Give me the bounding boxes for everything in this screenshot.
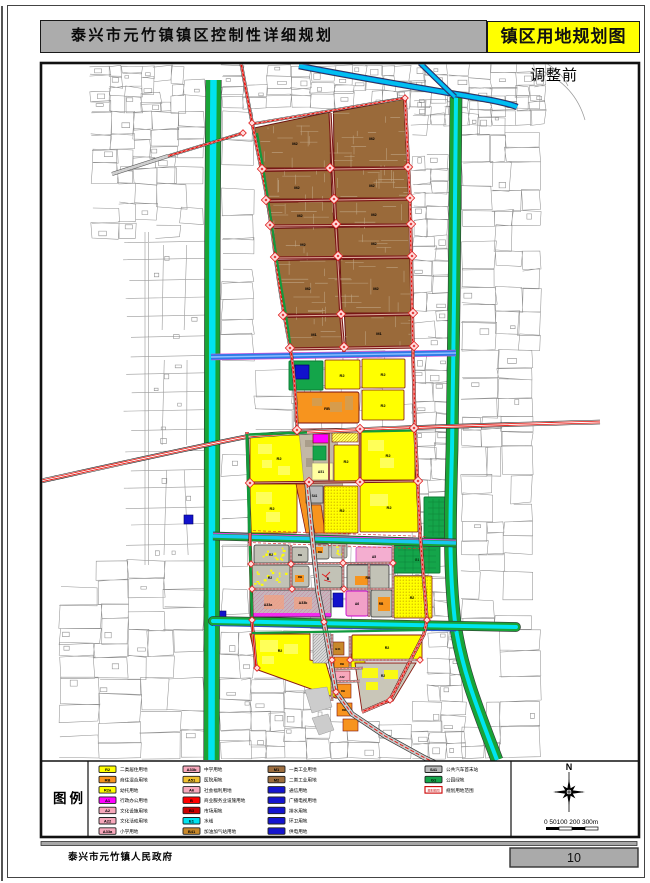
svg-text:R2: R2 bbox=[105, 767, 111, 772]
svg-text:二类居住用地: 二类居住用地 bbox=[120, 766, 148, 773]
svg-text:M2: M2 bbox=[294, 185, 300, 190]
svg-text:RB: RB bbox=[342, 708, 346, 712]
svg-text:一类工业用地: 一类工业用地 bbox=[289, 766, 317, 773]
svg-text:B41: B41 bbox=[335, 647, 341, 651]
svg-text:A1: A1 bbox=[105, 798, 111, 803]
svg-text:S41: S41 bbox=[430, 767, 438, 772]
svg-text:公共汽车首末站: 公共汽车首末站 bbox=[446, 766, 479, 773]
svg-text:A33b: A33b bbox=[299, 601, 309, 605]
svg-text:M2: M2 bbox=[369, 183, 375, 188]
svg-text:B: B bbox=[190, 798, 193, 803]
svg-text:行政办公用地: 行政办公用地 bbox=[120, 797, 148, 804]
svg-text:M2: M2 bbox=[373, 286, 379, 291]
svg-text:R2: R2 bbox=[410, 596, 414, 600]
svg-text:A33b: A33b bbox=[187, 767, 197, 772]
svg-text:商业服务业设施用地: 商业服务业设施用地 bbox=[204, 797, 246, 804]
svg-text:水域: 水域 bbox=[204, 818, 214, 824]
svg-text:0 50100 200 300m: 0 50100 200 300m bbox=[544, 819, 598, 826]
svg-text:A5: A5 bbox=[372, 555, 376, 559]
svg-text:R2: R2 bbox=[269, 553, 273, 557]
svg-text:通信用地: 通信用地 bbox=[289, 787, 308, 794]
svg-text:文化设施用地: 文化设施用地 bbox=[120, 807, 148, 814]
svg-text:R2a: R2a bbox=[104, 788, 112, 793]
svg-text:R2: R2 bbox=[276, 456, 282, 461]
svg-text:图例: 图例 bbox=[53, 790, 86, 806]
svg-text:R2: R2 bbox=[380, 403, 386, 408]
svg-text:RB: RB bbox=[324, 406, 330, 411]
svg-text:幼托用地: 幼托用地 bbox=[120, 787, 139, 794]
svg-text:A22: A22 bbox=[104, 819, 112, 824]
svg-text:10: 10 bbox=[567, 851, 581, 865]
svg-text:A51: A51 bbox=[318, 470, 324, 474]
svg-text:B3: B3 bbox=[189, 808, 195, 813]
svg-text:M2: M2 bbox=[274, 777, 280, 782]
svg-text:RB: RB bbox=[340, 662, 344, 666]
svg-text:M2: M2 bbox=[305, 286, 311, 291]
svg-text:A33a: A33a bbox=[264, 603, 274, 607]
svg-text:A2: A2 bbox=[105, 808, 111, 813]
svg-text:文化活动用地: 文化活动用地 bbox=[120, 818, 148, 825]
svg-text:R2: R2 bbox=[339, 373, 345, 378]
svg-text:规划用地范围: 规划用地范围 bbox=[446, 787, 474, 794]
svg-text:M1: M1 bbox=[376, 331, 382, 336]
svg-text:N: N bbox=[566, 762, 573, 772]
svg-text:排水用地: 排水用地 bbox=[289, 807, 308, 814]
svg-text:R2: R2 bbox=[386, 505, 392, 510]
svg-text:A22: A22 bbox=[339, 675, 345, 679]
svg-text:E1: E1 bbox=[189, 819, 195, 824]
svg-text:R2: R2 bbox=[385, 646, 390, 650]
svg-text:M1: M1 bbox=[274, 767, 280, 772]
svg-text:广播电视用地: 广播电视用地 bbox=[289, 797, 317, 804]
svg-text:R2: R2 bbox=[269, 506, 275, 511]
svg-text:R2: R2 bbox=[380, 372, 386, 377]
svg-text:供电用地: 供电用地 bbox=[289, 828, 308, 835]
svg-text:RB: RB bbox=[379, 602, 384, 606]
svg-text:RB: RB bbox=[366, 576, 371, 580]
svg-text:M2: M2 bbox=[292, 141, 298, 146]
svg-text:规划范围: 规划范围 bbox=[427, 787, 439, 792]
svg-text:A6: A6 bbox=[189, 788, 195, 793]
svg-text:RB: RB bbox=[105, 777, 111, 782]
svg-text:R2: R2 bbox=[343, 459, 349, 464]
svg-text:R2: R2 bbox=[339, 508, 345, 513]
svg-text:M2: M2 bbox=[369, 136, 375, 141]
svg-text:市场用地: 市场用地 bbox=[204, 807, 223, 814]
svg-text:中学用地: 中学用地 bbox=[204, 766, 223, 773]
svg-text:R2: R2 bbox=[268, 576, 272, 580]
svg-text:R2: R2 bbox=[385, 453, 391, 458]
svg-text:RB: RB bbox=[341, 689, 345, 693]
svg-text:A33a: A33a bbox=[103, 829, 113, 834]
svg-text:B41: B41 bbox=[188, 829, 196, 834]
svg-text:商住混合用地: 商住混合用地 bbox=[120, 777, 148, 784]
svg-text:医院用地: 医院用地 bbox=[204, 777, 223, 784]
svg-text:R2: R2 bbox=[278, 649, 283, 653]
svg-text:G1: G1 bbox=[415, 558, 420, 562]
svg-text:M2: M2 bbox=[300, 242, 306, 247]
svg-text:M2: M2 bbox=[371, 241, 377, 246]
svg-text:S41: S41 bbox=[312, 494, 318, 498]
svg-text:小学用地: 小学用地 bbox=[120, 828, 139, 835]
svg-text:环卫用地: 环卫用地 bbox=[289, 818, 308, 825]
svg-text:二类工业用地: 二类工业用地 bbox=[289, 777, 317, 784]
svg-text:G1: G1 bbox=[431, 777, 437, 782]
svg-text:R2: R2 bbox=[381, 674, 385, 678]
svg-text:M2: M2 bbox=[297, 213, 303, 218]
svg-text:社会福利用地: 社会福利用地 bbox=[204, 787, 232, 794]
svg-text:A6: A6 bbox=[355, 602, 359, 606]
svg-text:公园绿地: 公园绿地 bbox=[446, 777, 465, 784]
svg-text:调整前: 调整前 bbox=[530, 67, 578, 84]
svg-text:M2: M2 bbox=[371, 212, 377, 217]
svg-text:泰兴市元竹镇人民政府: 泰兴市元竹镇人民政府 bbox=[67, 851, 173, 863]
svg-text:加油加气站用地: 加油加气站用地 bbox=[204, 828, 237, 835]
svg-text:A51: A51 bbox=[188, 777, 196, 782]
svg-text:M1: M1 bbox=[311, 332, 317, 337]
